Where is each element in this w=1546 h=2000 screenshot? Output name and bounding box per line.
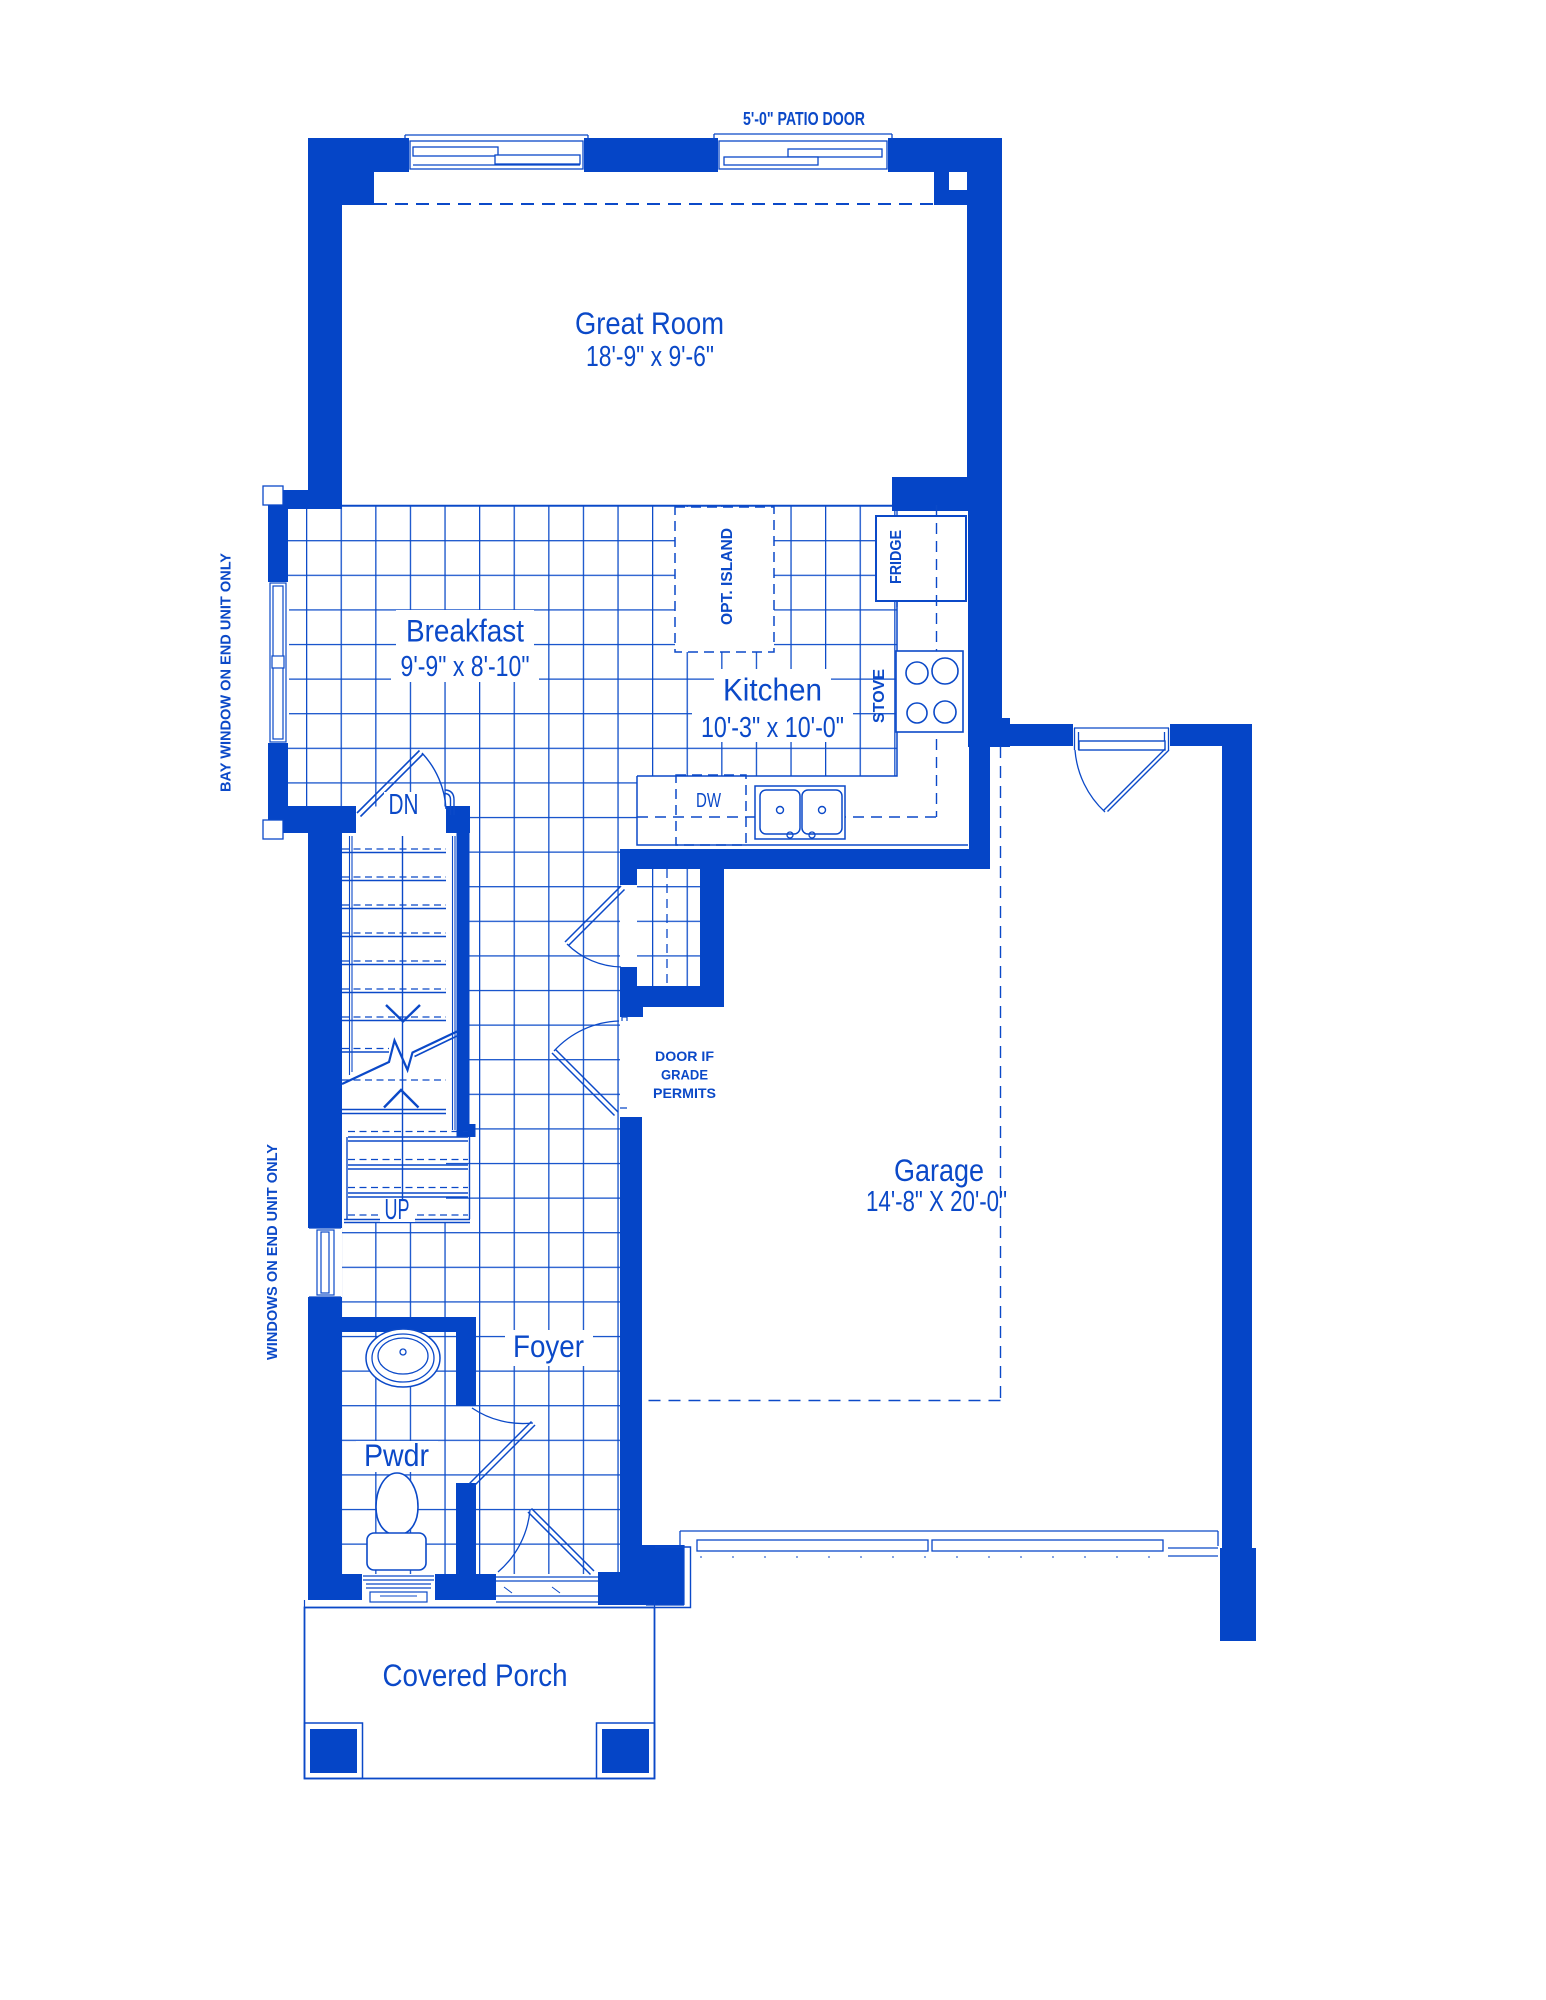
svg-text:UP: UP (385, 1194, 410, 1226)
svg-text:Foyer: Foyer (513, 1328, 584, 1364)
svg-text:STOVE: STOVE (871, 669, 888, 723)
svg-text:DOOR IF: DOOR IF (655, 1048, 714, 1064)
svg-text:PERMITS: PERMITS (653, 1085, 716, 1101)
svg-text:5'-0" PATIO DOOR: 5'-0" PATIO DOOR (743, 109, 865, 129)
svg-text:GRADE: GRADE (661, 1067, 708, 1083)
svg-text:10'-3" x 10'-0": 10'-3" x 10'-0" (701, 712, 844, 744)
svg-text:Garage: Garage (894, 1152, 984, 1188)
svg-text:OPT. ISLAND: OPT. ISLAND (719, 528, 736, 625)
svg-text:DW: DW (696, 790, 721, 812)
svg-text:Covered Porch: Covered Porch (383, 1657, 568, 1693)
svg-text:FRIDGE: FRIDGE (888, 530, 905, 584)
svg-text:9'-9" x 8'-10": 9'-9" x 8'-10" (401, 651, 530, 683)
svg-text:BAY WINDOW ON END UNIT ONLY: BAY WINDOW ON END UNIT ONLY (218, 553, 235, 792)
svg-text:WINDOWS ON END UNIT ONLY: WINDOWS ON END UNIT ONLY (264, 1144, 281, 1360)
svg-text:Great Room: Great Room (575, 305, 724, 341)
svg-text:Breakfast: Breakfast (406, 613, 524, 649)
svg-text:14'-8" X 20'-0": 14'-8" X 20'-0" (866, 1186, 1007, 1218)
svg-text:Kitchen: Kitchen (723, 672, 822, 708)
svg-text:DN: DN (389, 789, 419, 821)
svg-text:18'-9" x 9'-6": 18'-9" x 9'-6" (586, 341, 714, 373)
svg-text:Pwdr: Pwdr (364, 1437, 429, 1473)
